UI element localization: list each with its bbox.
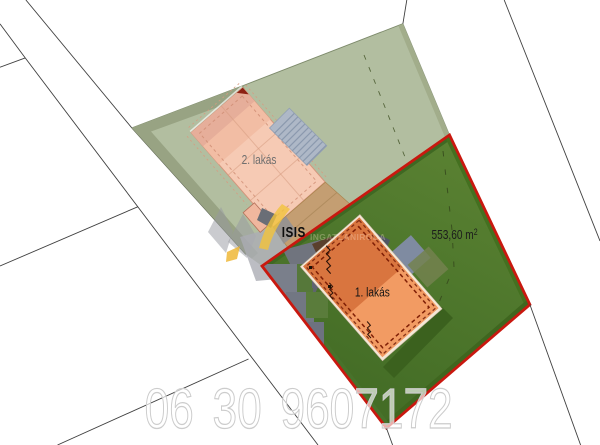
svg-text:9607172: 9607172 [280, 377, 452, 440]
svg-text:INGATLANIRODA: INGATLANIRODA [310, 232, 386, 242]
svg-text:06: 06 [145, 377, 194, 440]
svg-text:1. lakás: 1. lakás [355, 285, 390, 299]
svg-text:ISIS: ISIS [282, 224, 306, 241]
svg-text:30: 30 [213, 377, 262, 440]
svg-text:553,60 m2: 553,60 m2 [432, 227, 479, 242]
svg-text:2. lakás: 2. lakás [242, 153, 277, 167]
